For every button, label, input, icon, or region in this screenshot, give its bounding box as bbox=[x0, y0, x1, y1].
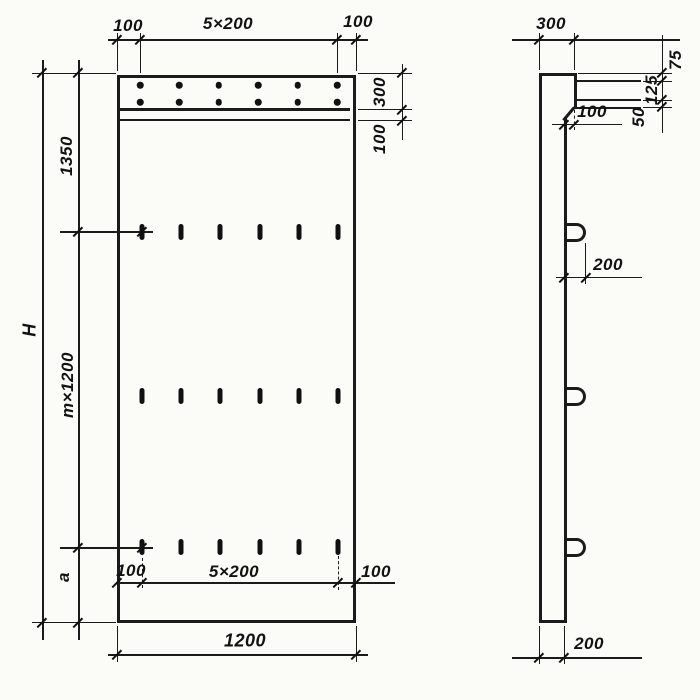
dim-bottom-inner-right-100: 100 bbox=[361, 562, 391, 582]
dim-m1200: m×1200 bbox=[58, 352, 78, 418]
dim-top-spacing: 5×200 bbox=[203, 14, 253, 34]
dimension-line bbox=[512, 657, 642, 659]
hole-dot bbox=[176, 99, 183, 106]
slot-mark bbox=[140, 224, 145, 240]
dimension-line bbox=[402, 64, 403, 140]
extension-line-dashed bbox=[574, 110, 575, 130]
dim-side-75: 75 bbox=[666, 50, 686, 70]
slot-mark bbox=[218, 539, 223, 555]
hole-dot bbox=[216, 82, 223, 89]
slot-mark bbox=[218, 388, 223, 404]
hole-dot bbox=[334, 82, 341, 89]
dim-substrip-100: 100 bbox=[370, 124, 390, 154]
slot-mark bbox=[296, 539, 301, 555]
side-shelf-line bbox=[577, 99, 641, 101]
dim-strip-300: 300 bbox=[370, 77, 390, 107]
slot-mark bbox=[257, 388, 262, 404]
dim-bottom-inner-spacing: 5×200 bbox=[209, 562, 259, 582]
slot-mark bbox=[179, 539, 184, 555]
lifting-loop bbox=[564, 223, 586, 242]
extension-line-dashed bbox=[338, 556, 339, 590]
hole-dot bbox=[334, 99, 341, 106]
dim-side-50: 50 bbox=[629, 107, 649, 127]
slot-mark bbox=[257, 224, 262, 240]
side-shelf-line bbox=[577, 80, 641, 82]
slot-mark bbox=[140, 388, 145, 404]
hole-dot bbox=[176, 82, 183, 89]
dim-top-left-100: 100 bbox=[113, 16, 143, 36]
hole-dot bbox=[294, 99, 301, 106]
slot-mark bbox=[179, 224, 184, 240]
dim-side-step-100: 100 bbox=[577, 102, 607, 122]
side-bottom-edge bbox=[539, 620, 567, 623]
top-strip-bottom-line bbox=[120, 108, 350, 111]
dim-side-loop-200: 200 bbox=[593, 255, 623, 275]
dim-overall-H: H bbox=[20, 323, 41, 337]
lifting-loop bbox=[564, 387, 586, 406]
slot-mark bbox=[296, 388, 301, 404]
extension-line bbox=[32, 622, 116, 623]
dim-1350: 1350 bbox=[57, 136, 77, 176]
slot-mark bbox=[257, 539, 262, 555]
extension-line bbox=[356, 626, 357, 662]
side-left-face bbox=[539, 73, 542, 623]
dim-side-top-300: 300 bbox=[536, 14, 566, 34]
hole-dot bbox=[255, 82, 262, 89]
dimension-line bbox=[108, 39, 368, 41]
lifting-loop bbox=[564, 538, 586, 557]
dim-top-right-100: 100 bbox=[343, 12, 373, 32]
engineering-drawing: 100 5×200 100 300 100 H 1350 m×1200 a 10… bbox=[0, 0, 700, 700]
side-top-edge bbox=[539, 73, 577, 76]
hole-dot bbox=[137, 82, 144, 89]
hole-dot bbox=[216, 99, 223, 106]
sub-strip-bottom-line bbox=[120, 119, 350, 121]
slot-mark bbox=[296, 224, 301, 240]
hole-dot bbox=[137, 99, 144, 106]
slot-mark bbox=[336, 224, 341, 240]
extension-line bbox=[117, 626, 118, 662]
dimension-line bbox=[662, 35, 663, 133]
slot-mark bbox=[336, 388, 341, 404]
slot-mark bbox=[140, 539, 145, 555]
slot-mark bbox=[179, 388, 184, 404]
dim-side-thickness-200: 200 bbox=[574, 634, 604, 654]
dimension-line bbox=[42, 60, 44, 640]
dimension-line bbox=[78, 60, 80, 640]
hole-dot bbox=[255, 99, 262, 106]
dimension-line bbox=[556, 277, 642, 278]
front-panel-outline bbox=[117, 75, 356, 623]
dim-width-1200: 1200 bbox=[224, 631, 266, 652]
slot-mark bbox=[218, 224, 223, 240]
hole-dot bbox=[294, 82, 301, 89]
dimension-line bbox=[108, 654, 368, 656]
slot-mark bbox=[336, 539, 341, 555]
dim-a: a bbox=[54, 572, 74, 582]
